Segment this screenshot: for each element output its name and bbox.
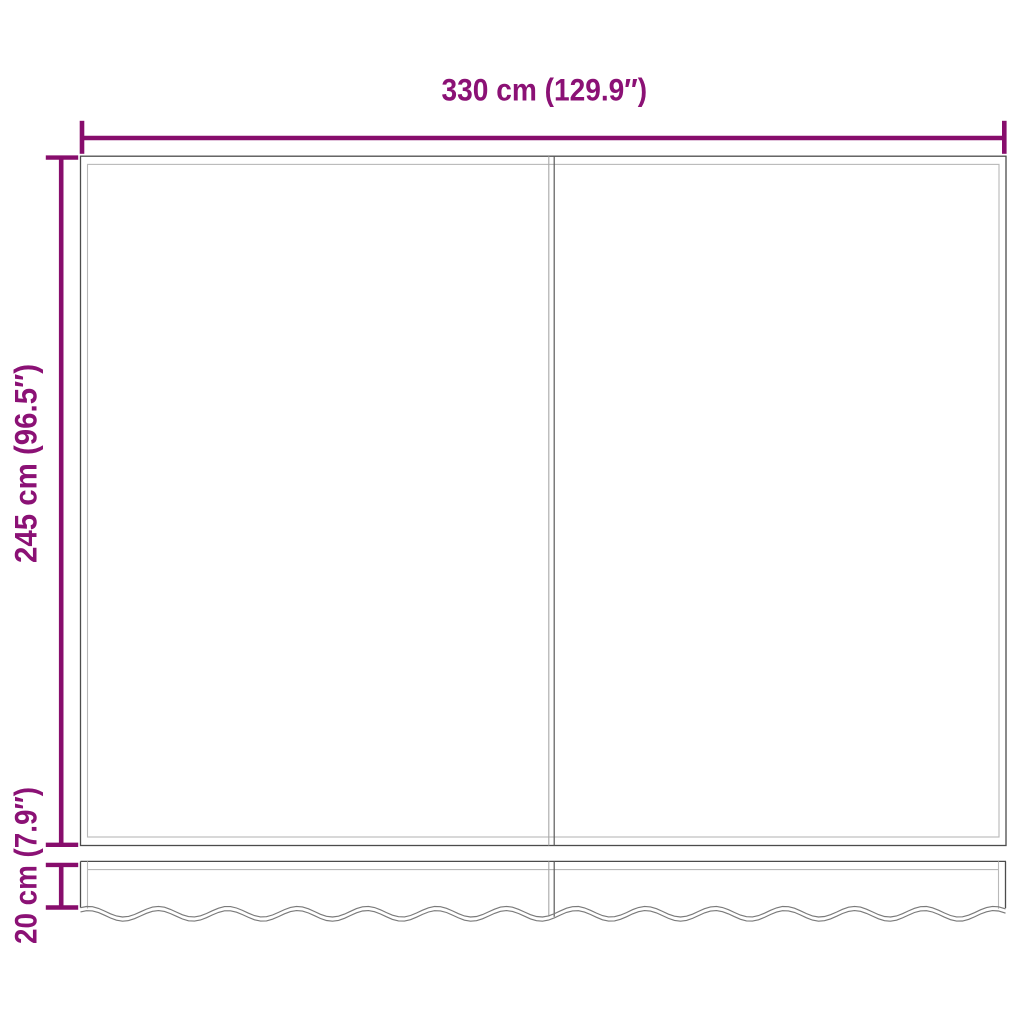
svg-text:245 cm (96.5″): 245 cm (96.5″) bbox=[8, 364, 44, 563]
svg-text:20 cm (7.9″): 20 cm (7.9″) bbox=[8, 787, 44, 944]
svg-text:330 cm (129.9″): 330 cm (129.9″) bbox=[442, 72, 648, 108]
